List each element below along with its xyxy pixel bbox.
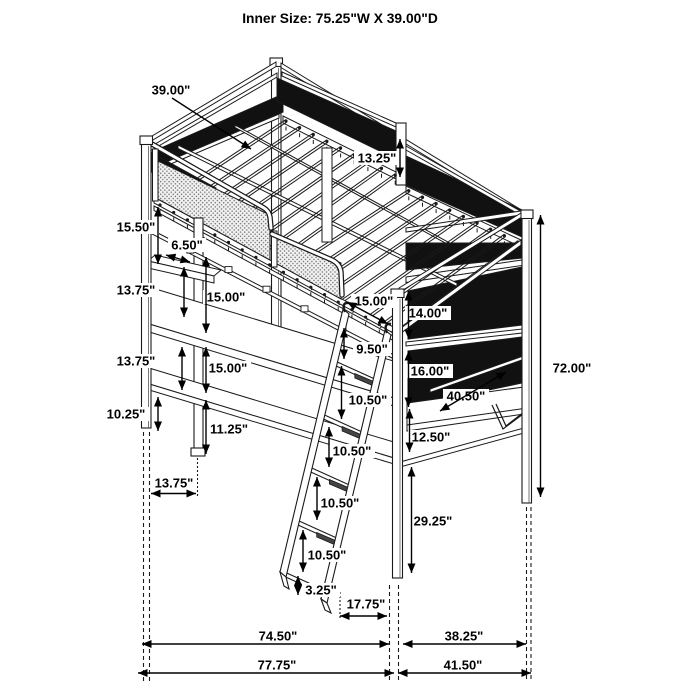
svg-text:29.25": 29.25" xyxy=(414,514,453,529)
svg-text:16.00": 16.00" xyxy=(411,364,450,379)
svg-text:38.25": 38.25" xyxy=(445,629,484,644)
svg-text:15.50": 15.50" xyxy=(117,220,156,235)
svg-text:3.25": 3.25" xyxy=(305,583,336,598)
svg-text:17.75": 17.75" xyxy=(347,597,386,612)
svg-text:74.50": 74.50" xyxy=(259,629,298,644)
svg-text:9.50": 9.50" xyxy=(356,342,387,357)
svg-text:77.75": 77.75" xyxy=(258,658,297,673)
svg-text:6.50": 6.50" xyxy=(171,238,202,253)
svg-text:Inner Size: 75.25"W X 39.00"D: Inner Size: 75.25"W X 39.00"D xyxy=(242,11,438,26)
svg-text:11.25": 11.25" xyxy=(210,422,248,437)
svg-text:41.50": 41.50" xyxy=(444,658,483,673)
svg-text:39.00": 39.00" xyxy=(152,83,191,98)
svg-text:10.50": 10.50" xyxy=(308,548,347,563)
svg-text:72.00": 72.00" xyxy=(553,361,592,376)
svg-text:10.25": 10.25" xyxy=(107,407,146,422)
svg-text:10.50": 10.50" xyxy=(321,496,360,511)
svg-text:13.75": 13.75" xyxy=(155,476,194,491)
svg-text:10.50": 10.50" xyxy=(333,444,372,459)
svg-text:13.25": 13.25" xyxy=(358,151,397,166)
svg-text:10.50": 10.50" xyxy=(349,393,388,408)
svg-text:15.00": 15.00" xyxy=(207,290,246,305)
svg-text:15.00": 15.00" xyxy=(355,294,394,309)
svg-text:12.50": 12.50" xyxy=(412,430,451,445)
svg-text:13.75": 13.75" xyxy=(117,354,156,369)
svg-text:15.00": 15.00" xyxy=(209,361,248,376)
svg-text:14.00": 14.00" xyxy=(409,306,448,321)
svg-text:13.75": 13.75" xyxy=(117,283,156,298)
